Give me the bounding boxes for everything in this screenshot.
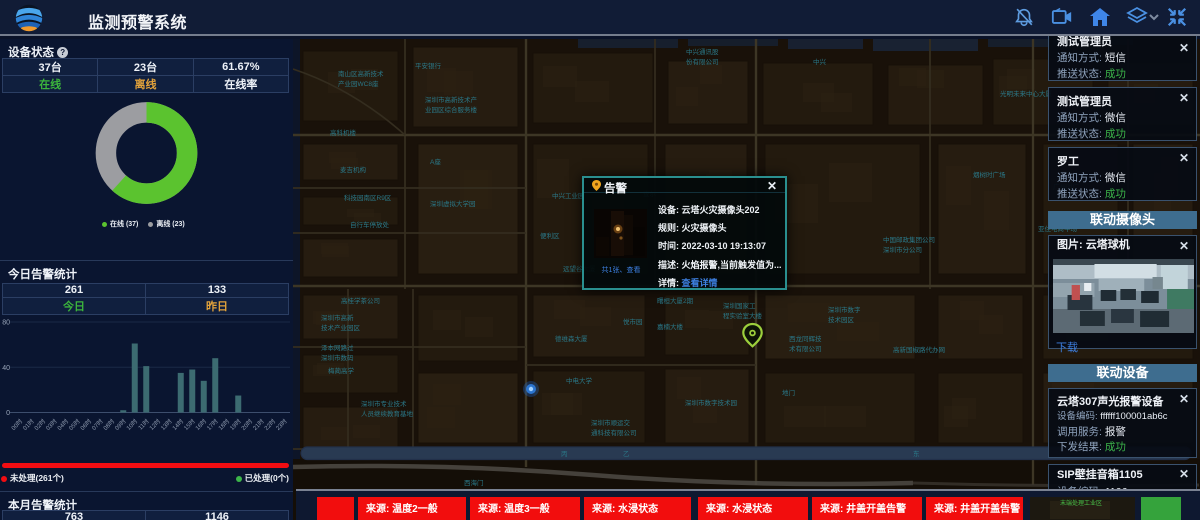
svg-text:业园区综合服务楼: 业园区综合服务楼 [425, 105, 478, 114]
svg-text:地门: 地门 [782, 388, 795, 397]
svg-text:中兴工业园: 中兴工业园 [552, 191, 585, 200]
svg-text:末端处理工业区: 末端处理工业区 [1060, 499, 1102, 507]
svg-text:03时: 03时 [44, 417, 59, 432]
svg-text:07时: 07时 [90, 417, 105, 432]
svg-text:08时: 08时 [102, 417, 117, 432]
svg-text:19时: 19时 [228, 417, 243, 432]
svg-text:11时: 11时 [136, 417, 150, 431]
svg-text:17时: 17时 [205, 417, 220, 432]
svg-text:深圳市数字技术园: 深圳市数字技术园 [685, 398, 737, 407]
svg-text:产业园WC8座: 产业园WC8座 [338, 79, 379, 88]
svg-text:悦市园: 悦市园 [623, 317, 643, 326]
svg-text:40: 40 [2, 365, 10, 372]
svg-text:西龙同辉技: 西龙同辉技 [789, 334, 822, 343]
svg-text:09时: 09时 [113, 417, 128, 432]
svg-text:22时: 22时 [263, 417, 278, 432]
svg-text:06时: 06时 [79, 417, 94, 432]
svg-text:20时: 20时 [240, 417, 255, 432]
svg-text:德维森大厦: 德维森大厦 [555, 334, 588, 343]
svg-text:麦吉机构: 麦吉机构 [340, 165, 367, 174]
svg-text:中兴: 中兴 [813, 57, 827, 66]
svg-text:18时: 18时 [217, 417, 232, 432]
svg-text:深圳市顺运交: 深圳市顺运交 [591, 418, 631, 427]
svg-text:通科技有限公司: 通科技有限公司 [591, 428, 637, 437]
svg-text:自行车停放处: 自行车停放处 [350, 220, 390, 229]
svg-text:光明未来中心大厦: 光明未来中心大厦 [1000, 89, 1053, 98]
svg-text:04时: 04时 [56, 417, 71, 432]
svg-text:深圳市数码: 深圳市数码 [321, 353, 354, 362]
svg-text:80: 80 [2, 320, 10, 327]
svg-text:西海门: 西海门 [464, 478, 484, 487]
svg-text:泽本网路过: 泽本网路过 [321, 343, 354, 352]
svg-text:深圳国家工: 深圳国家工 [723, 301, 756, 310]
svg-text:南山区高新技术: 南山区高新技术 [338, 69, 384, 78]
svg-text:中兴通讯股: 中兴通讯股 [686, 47, 719, 56]
svg-text:东: 东 [913, 449, 920, 458]
svg-text:05时: 05时 [67, 417, 82, 432]
svg-text:高新国椒路代办网: 高新国椒路代办网 [893, 345, 945, 354]
svg-text:深圳市分公司: 深圳市分公司 [883, 245, 922, 254]
svg-text:13时: 13时 [159, 417, 174, 432]
svg-text:高科机楼: 高科机楼 [330, 128, 357, 137]
svg-text:人员继续教育基地: 人员继续教育基地 [361, 409, 414, 418]
svg-text:21时: 21时 [251, 417, 266, 432]
svg-text:深圳市数字: 深圳市数字 [828, 305, 861, 314]
svg-text:曙桓大厦2期: 曙桓大厦2期 [657, 296, 694, 305]
svg-text:15时: 15时 [182, 417, 197, 432]
svg-text:深圳市专业技术: 深圳市专业技术 [361, 399, 407, 408]
svg-text:程实验室大楼: 程实验室大楼 [723, 311, 763, 320]
svg-text:14时: 14时 [171, 417, 186, 432]
svg-text:中国邮政集团公司: 中国邮政集团公司 [883, 235, 935, 244]
svg-text:0: 0 [6, 410, 10, 417]
svg-text:16时: 16时 [194, 417, 209, 432]
svg-text:10时: 10时 [125, 417, 140, 432]
svg-text:份有限公司: 份有限公司 [686, 57, 719, 66]
svg-text:科技园南区R9区: 科技园南区R9区 [344, 193, 392, 202]
svg-text:深圳市高新: 深圳市高新 [321, 313, 354, 322]
svg-text:00时: 00时 [10, 417, 25, 432]
svg-text:12时: 12时 [148, 417, 163, 432]
svg-text:技术园区: 技术园区 [828, 315, 855, 324]
svg-text:平安银行: 平安银行 [415, 61, 442, 70]
svg-text:乙: 乙 [623, 450, 630, 458]
svg-text:02时: 02时 [33, 417, 48, 432]
svg-text:技术产业园区: 技术产业园区 [321, 323, 361, 332]
svg-text:术有限公司: 术有限公司 [789, 344, 822, 353]
svg-text:梅蔺高学: 梅蔺高学 [328, 366, 355, 375]
svg-text:中电大学: 中电大学 [566, 376, 593, 385]
svg-text:01时: 01时 [21, 417, 36, 432]
svg-text:23时: 23时 [274, 417, 289, 432]
svg-text:嘉楠大楼: 嘉楠大楼 [657, 322, 684, 331]
svg-text:丙: 丙 [561, 450, 568, 458]
svg-text:深圳虚拟大学园: 深圳虚拟大学园 [430, 199, 476, 208]
svg-text:烟树时广场: 烟树时广场 [973, 170, 1006, 179]
svg-text:A座: A座 [430, 157, 441, 166]
svg-text:高桂学茶公司: 高桂学茶公司 [341, 296, 380, 305]
svg-text:便利区: 便利区 [540, 231, 560, 240]
svg-text:深圳市高新技术产: 深圳市高新技术产 [425, 95, 478, 104]
